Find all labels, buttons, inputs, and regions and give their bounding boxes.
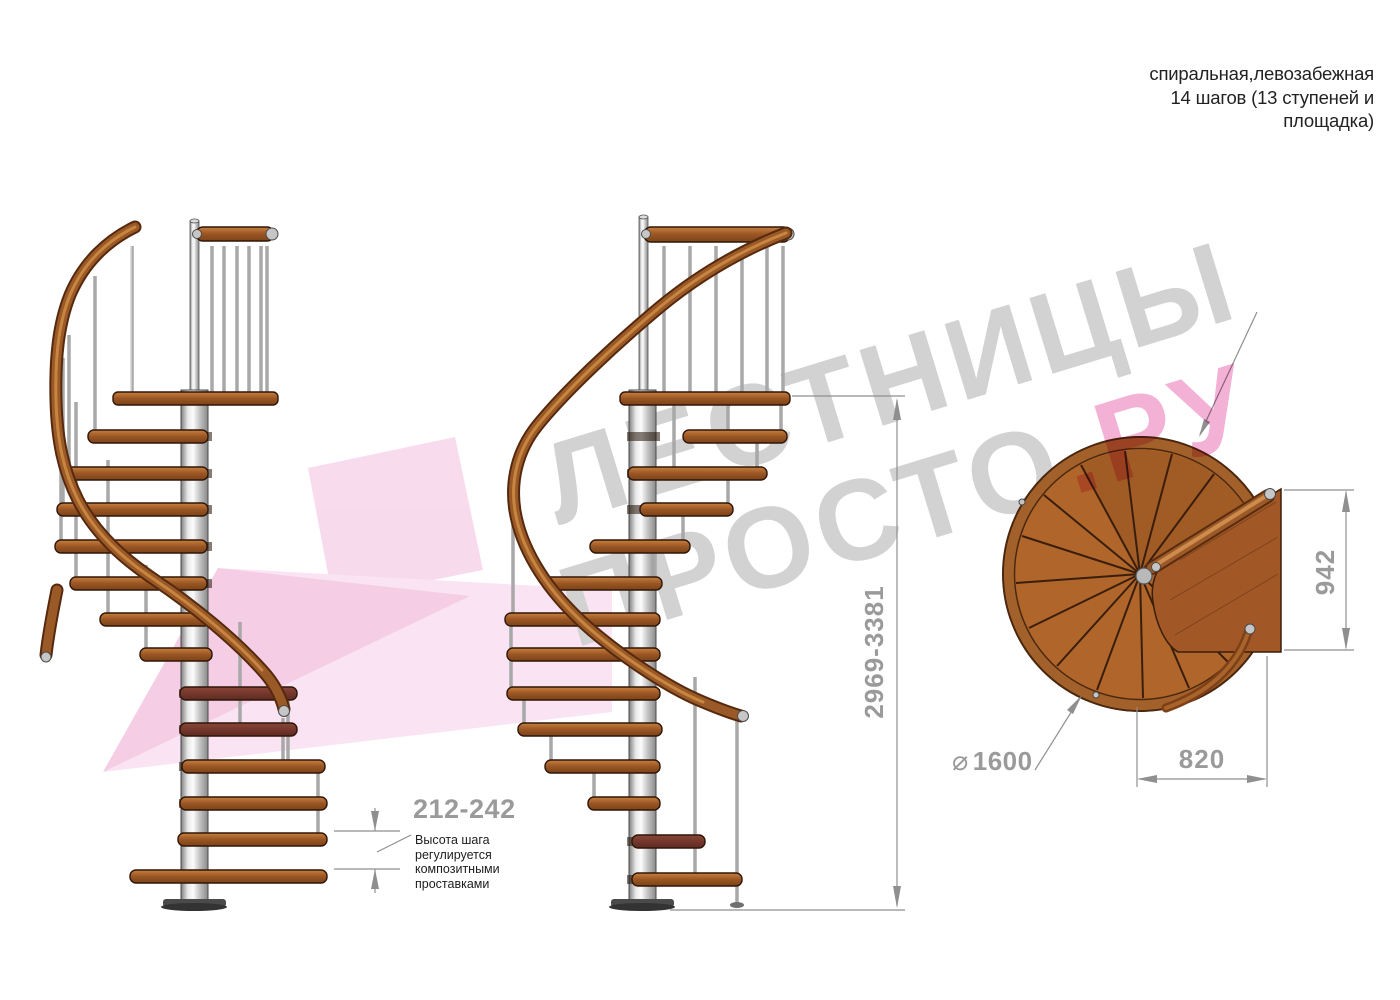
step-height-note: Высота шага регулируется композитными пр… <box>415 833 500 891</box>
drawing-canvas: ЛЕСТНИЦЫ ПРОСТО <box>0 0 1400 1000</box>
title-line-3: площадка) <box>994 109 1374 133</box>
note-line: регулируется <box>415 848 500 863</box>
title-line-2: 14 шагов (13 ступеней и <box>994 86 1374 110</box>
note-line: композитными <box>415 862 500 877</box>
watermark-brand-ru: .РУ <box>1044 339 1270 519</box>
diameter-symbol: ⌀ <box>952 746 973 776</box>
watermark-pink-layer: .РУ <box>0 0 1400 1000</box>
title-line-1: спиральная,левозабежная <box>994 62 1374 86</box>
diameter-label: ⌀1600 <box>952 746 1033 777</box>
note-line: Высота шага <box>415 833 500 848</box>
diameter-value: 1600 <box>973 746 1033 776</box>
note-line: проставками <box>415 877 500 892</box>
step-height-range-label: 212-242 <box>413 794 516 825</box>
title-block: спиральная,левозабежная 14 шагов (13 сту… <box>994 62 1374 133</box>
